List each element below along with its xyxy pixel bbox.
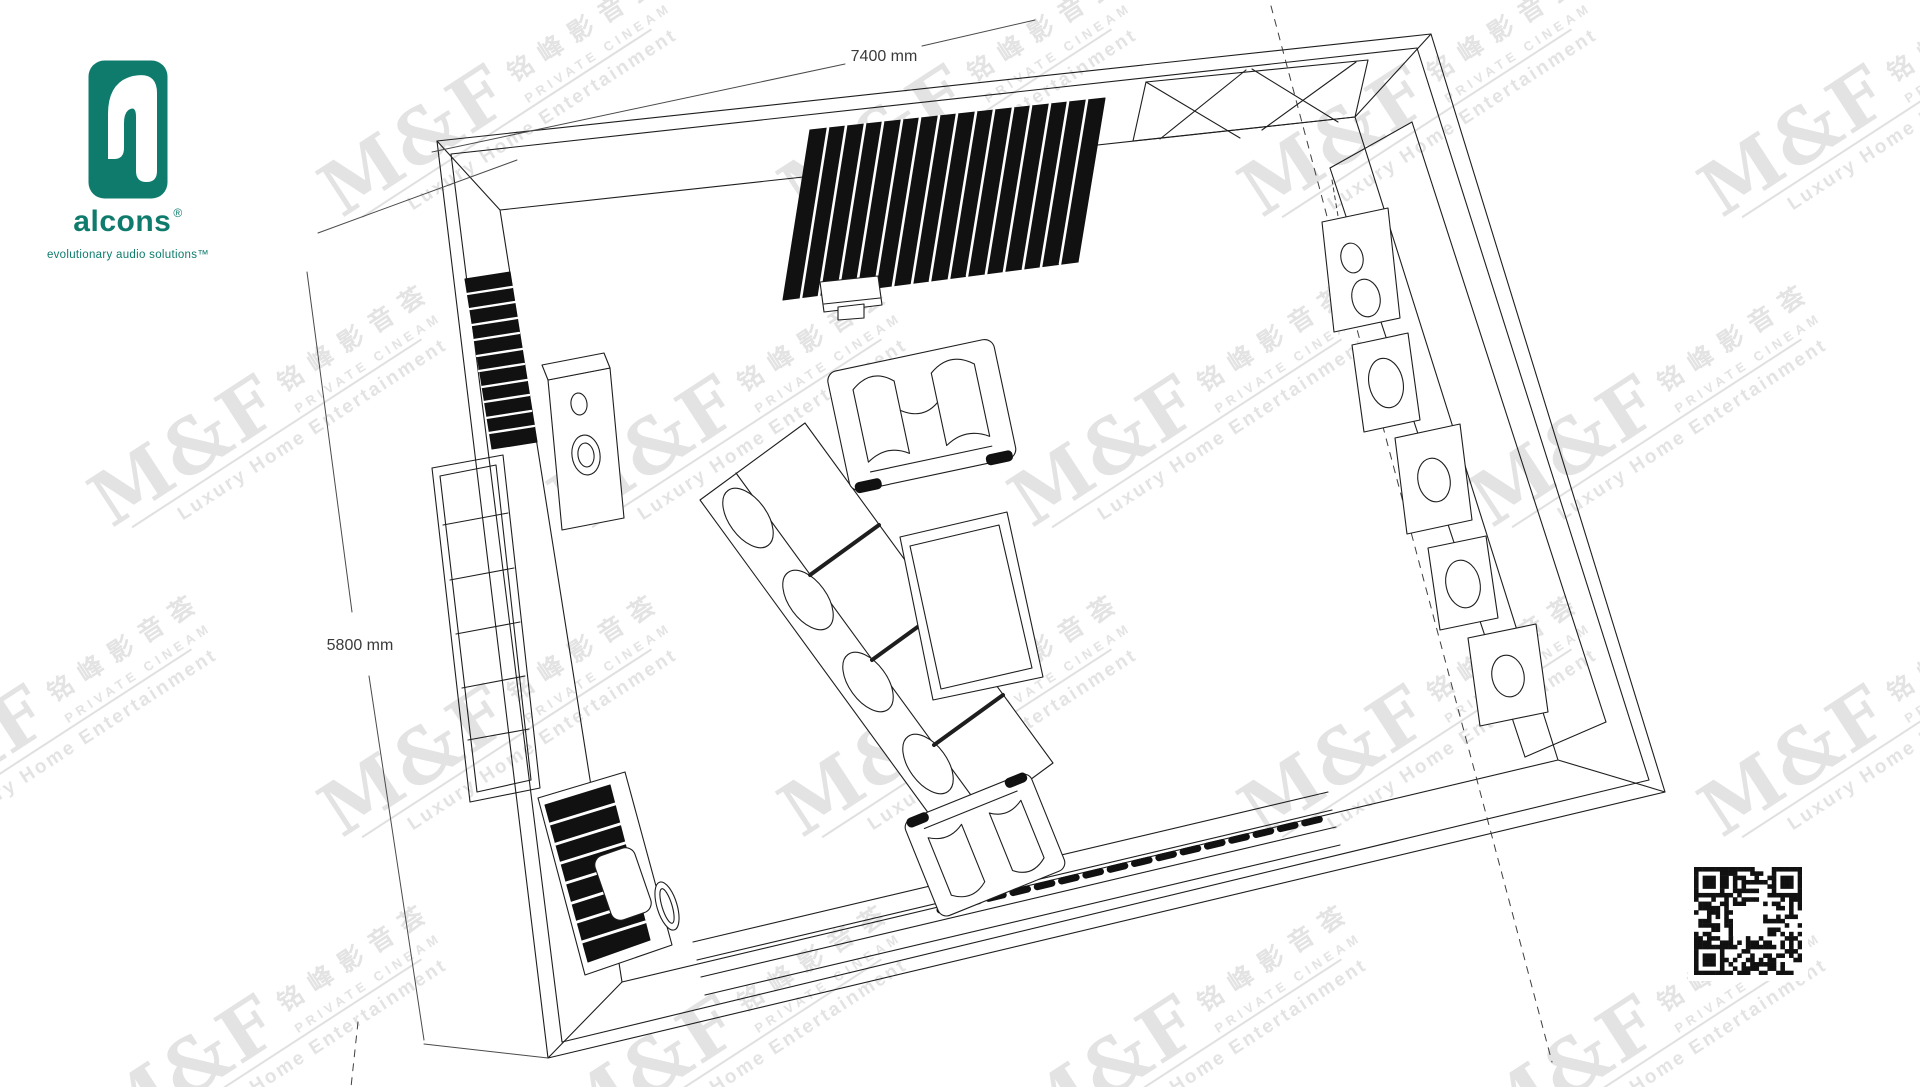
dimension-depth-label: 5800 mm: [327, 637, 394, 654]
room-axonometric-drawing: 7400 mm 5800 mm: [0, 0, 1920, 1087]
front-slat-panel: [783, 98, 1105, 300]
alcons-logo-mark: [88, 60, 168, 199]
surround-speaker: [1322, 208, 1400, 332]
wall-port: [1428, 536, 1498, 630]
qr-code: [1688, 861, 1808, 981]
center-speaker: [820, 276, 882, 320]
subwoofer: [538, 772, 684, 975]
dimension-width-label: 7400 mm: [851, 48, 918, 65]
alcons-tagline: evolutionary audio solutions™: [47, 249, 209, 261]
qr-center-logo: [1733, 906, 1763, 936]
left-wall-speaker: [542, 353, 624, 530]
alcons-logo: alcons® evolutionary audio solutions™: [68, 60, 188, 261]
faceted-wall-panels: [1133, 60, 1368, 141]
equipment-shelf: [432, 455, 540, 802]
armchair-front: [826, 338, 1018, 495]
surround-speaker-column: [1322, 122, 1606, 757]
page-canvas: M&F铭峰影音荟PRIVATE CINEAMLuxury Home Entert…: [0, 0, 1920, 1087]
surround-speaker: [1395, 424, 1472, 534]
wall-port: [1352, 333, 1420, 432]
surround-speaker: [1468, 624, 1548, 726]
registered-mark-icon: ®: [173, 206, 182, 220]
left-slat-panel: [465, 272, 537, 449]
alcons-wordmark: alcons®: [73, 207, 182, 237]
